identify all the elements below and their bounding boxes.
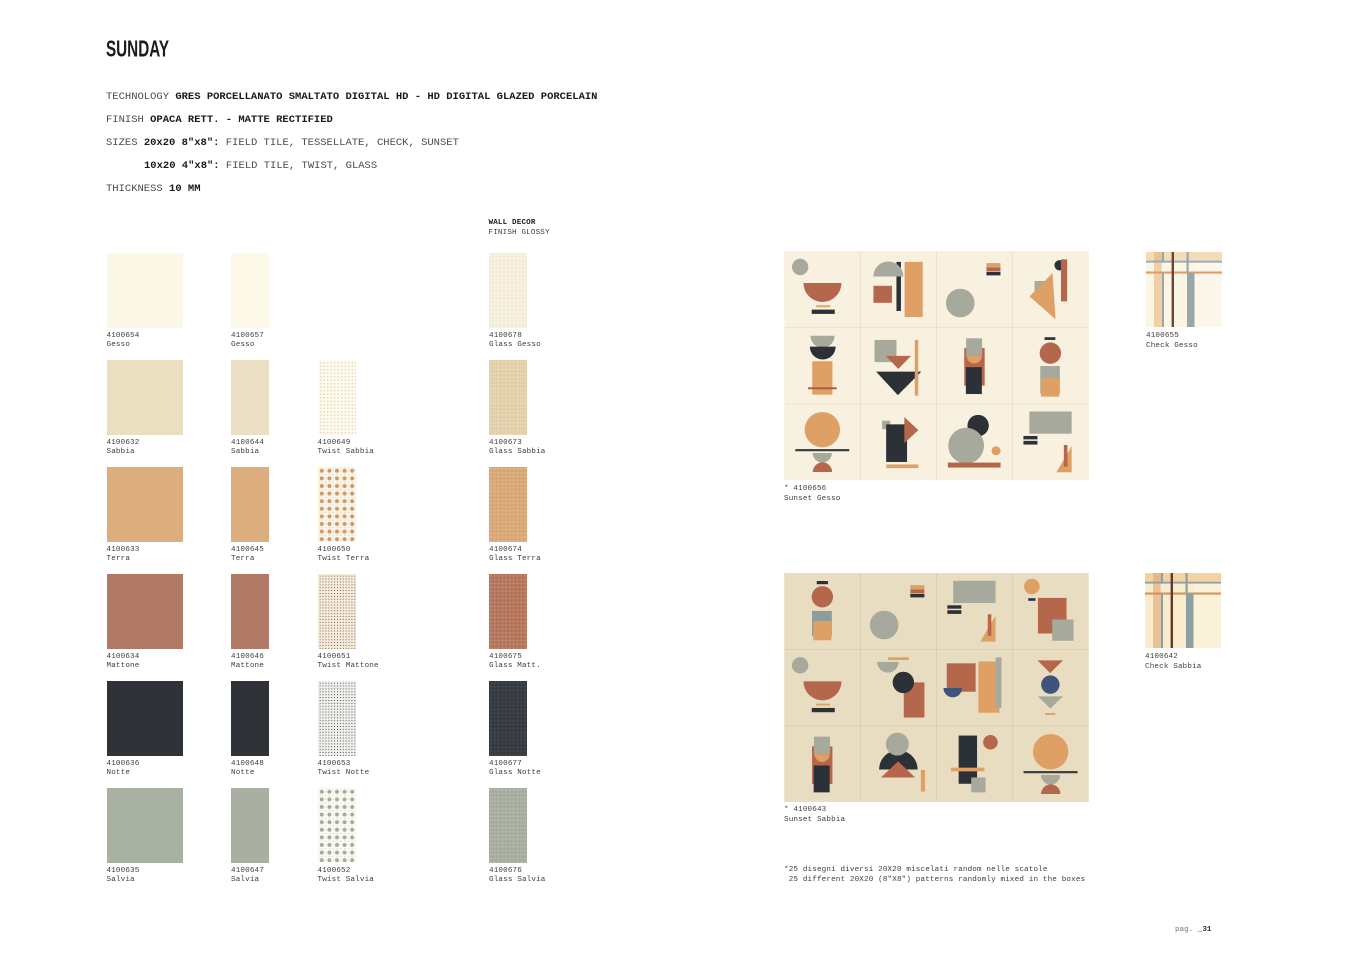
svg-text:SUNDAY: SUNDAY	[106, 36, 169, 60]
